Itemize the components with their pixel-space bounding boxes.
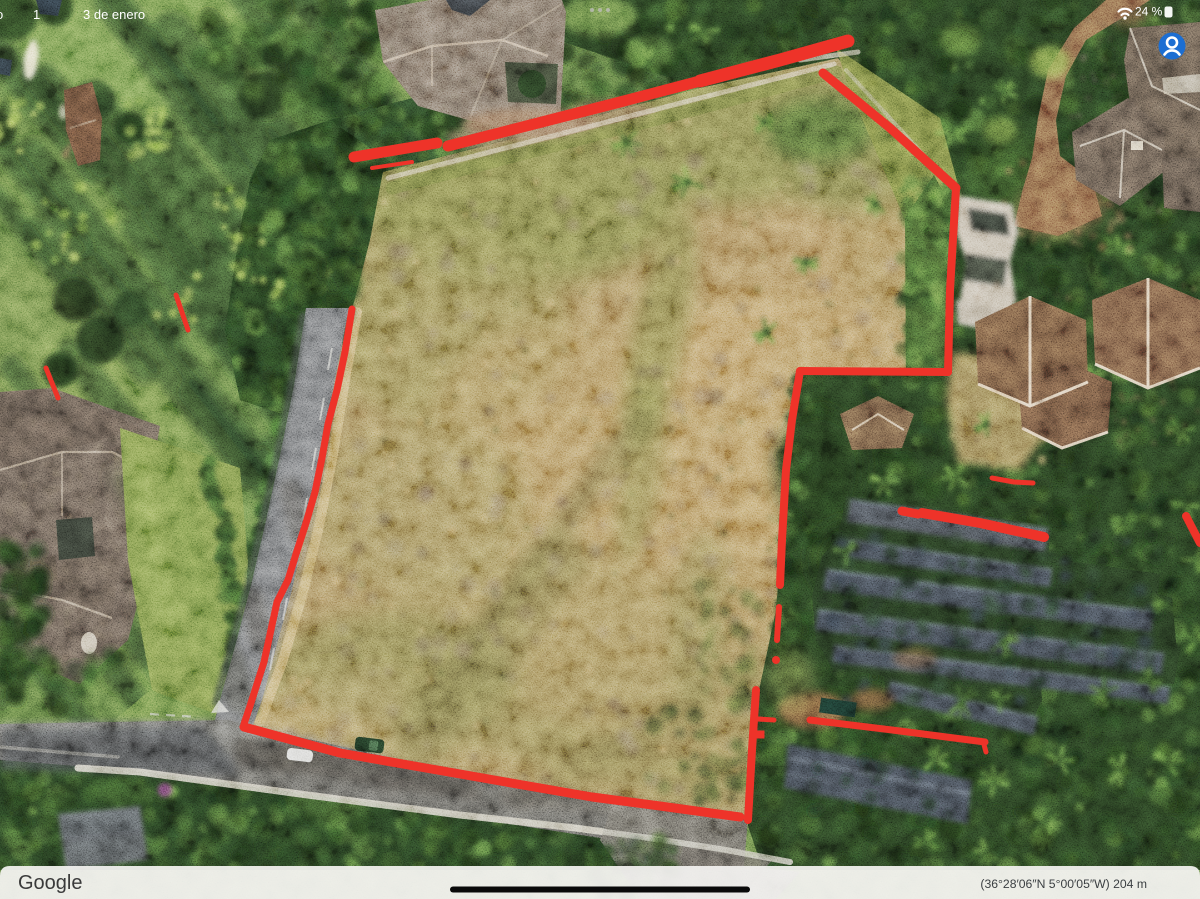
svg-text:24 %: 24 %: [1135, 5, 1163, 19]
svg-text:(36°28′06″N 5°00′05″W) 204 m: (36°28′06″N 5°00′05″W) 204 m: [980, 877, 1147, 891]
svg-text:3 de enero: 3 de enero: [83, 7, 145, 22]
svg-text:o: o: [0, 7, 3, 22]
svg-text:1: 1: [33, 7, 40, 22]
svg-text:Google: Google: [18, 872, 83, 894]
